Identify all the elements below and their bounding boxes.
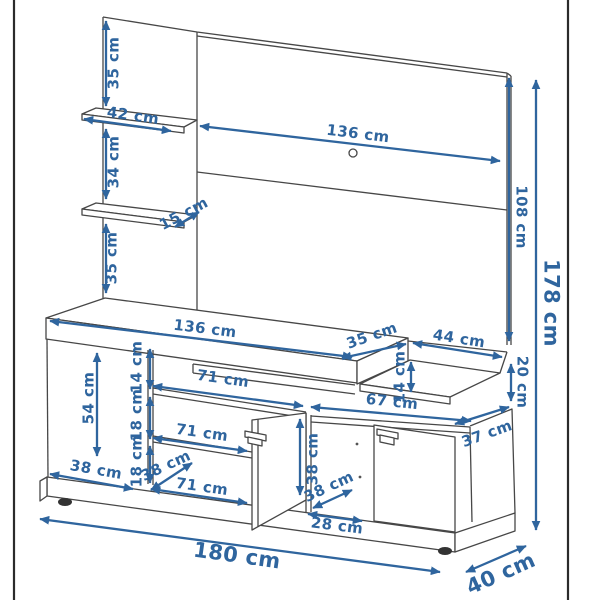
dimension-label: 38 cm xyxy=(306,433,321,486)
dimension-label: 20 cm xyxy=(515,356,530,409)
dimension-label: 14 cm xyxy=(130,341,145,394)
dimension-label: 35 cm xyxy=(105,232,120,285)
dimension-label: 35 cm xyxy=(107,37,122,90)
dimension-label: 54 cm xyxy=(82,372,97,425)
dimension-label: 178 cm xyxy=(541,259,562,347)
furniture-dimension-diagram: 35 cm 42 cm 34 cm 15 cm 35 cm 136 cm 108… xyxy=(0,0,600,600)
dimension-label: 34 cm xyxy=(107,136,122,189)
cable-hole xyxy=(349,149,357,157)
furniture-line-drawing xyxy=(0,0,600,600)
dimension-label: 108 cm xyxy=(514,185,529,248)
dimension-label: 18 cm xyxy=(130,389,145,442)
